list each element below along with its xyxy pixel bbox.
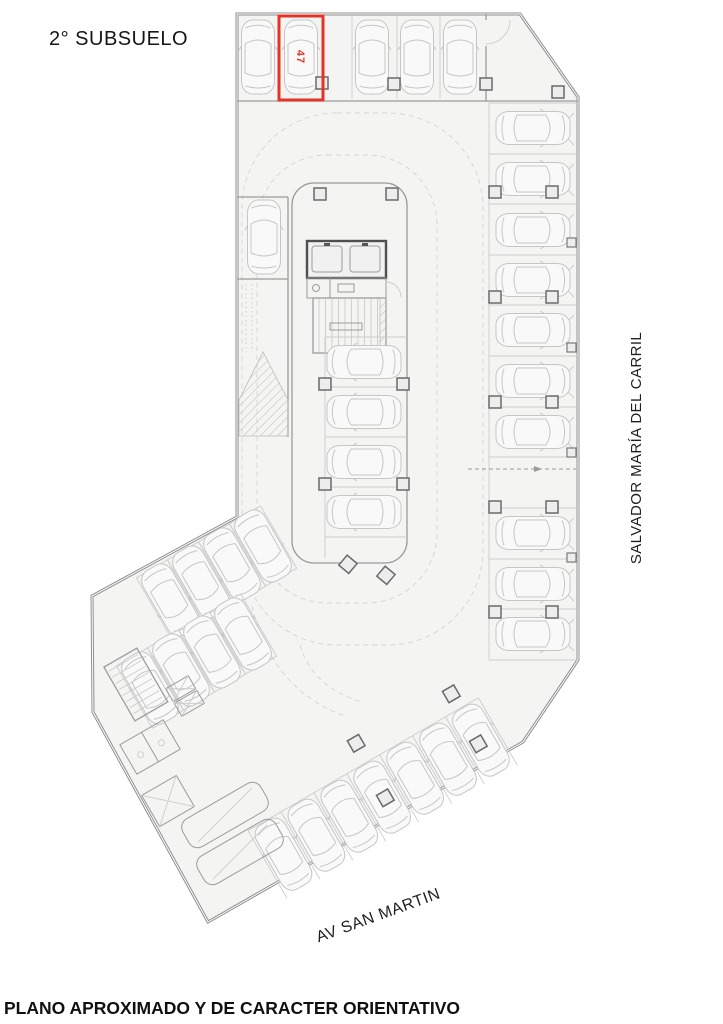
car-icon (496, 413, 570, 451)
page-title: 2° SUBSUELO (49, 28, 188, 50)
spot-47-label: 47 (294, 50, 306, 64)
car-icon (496, 311, 570, 349)
car-icon (496, 565, 570, 603)
car-icon (496, 362, 570, 400)
street-label-bottom: AV SAN MARTIN (314, 885, 443, 946)
car-icon (441, 20, 479, 94)
car-icon (245, 200, 283, 274)
car-icon (496, 615, 570, 653)
car-icon (353, 20, 391, 94)
car-icon (496, 109, 570, 147)
car-icon (496, 211, 570, 249)
car-icon (327, 443, 401, 481)
car-icon (496, 261, 570, 299)
car-icon (239, 20, 277, 94)
car-icon (327, 343, 401, 381)
car-icon (327, 393, 401, 431)
car-icon (327, 493, 401, 531)
car-icon (496, 160, 570, 198)
car-icon (398, 20, 436, 94)
floor-plan: 47 2° SUBSUELO SALVADOR MARÍA DEL CARRIL… (0, 0, 723, 1024)
floor-plan-page: 47 2° SUBSUELO SALVADOR MARÍA DEL CARRIL… (0, 0, 723, 1024)
street-label-right: SALVADOR MARÍA DEL CARRIL (628, 332, 645, 564)
elevator-core (307, 241, 386, 278)
island-parking (325, 337, 407, 558)
disclaimer: PLANO APROXIMADO Y DE CARACTER ORIENTATI… (4, 998, 460, 1018)
car-icon (496, 514, 570, 552)
